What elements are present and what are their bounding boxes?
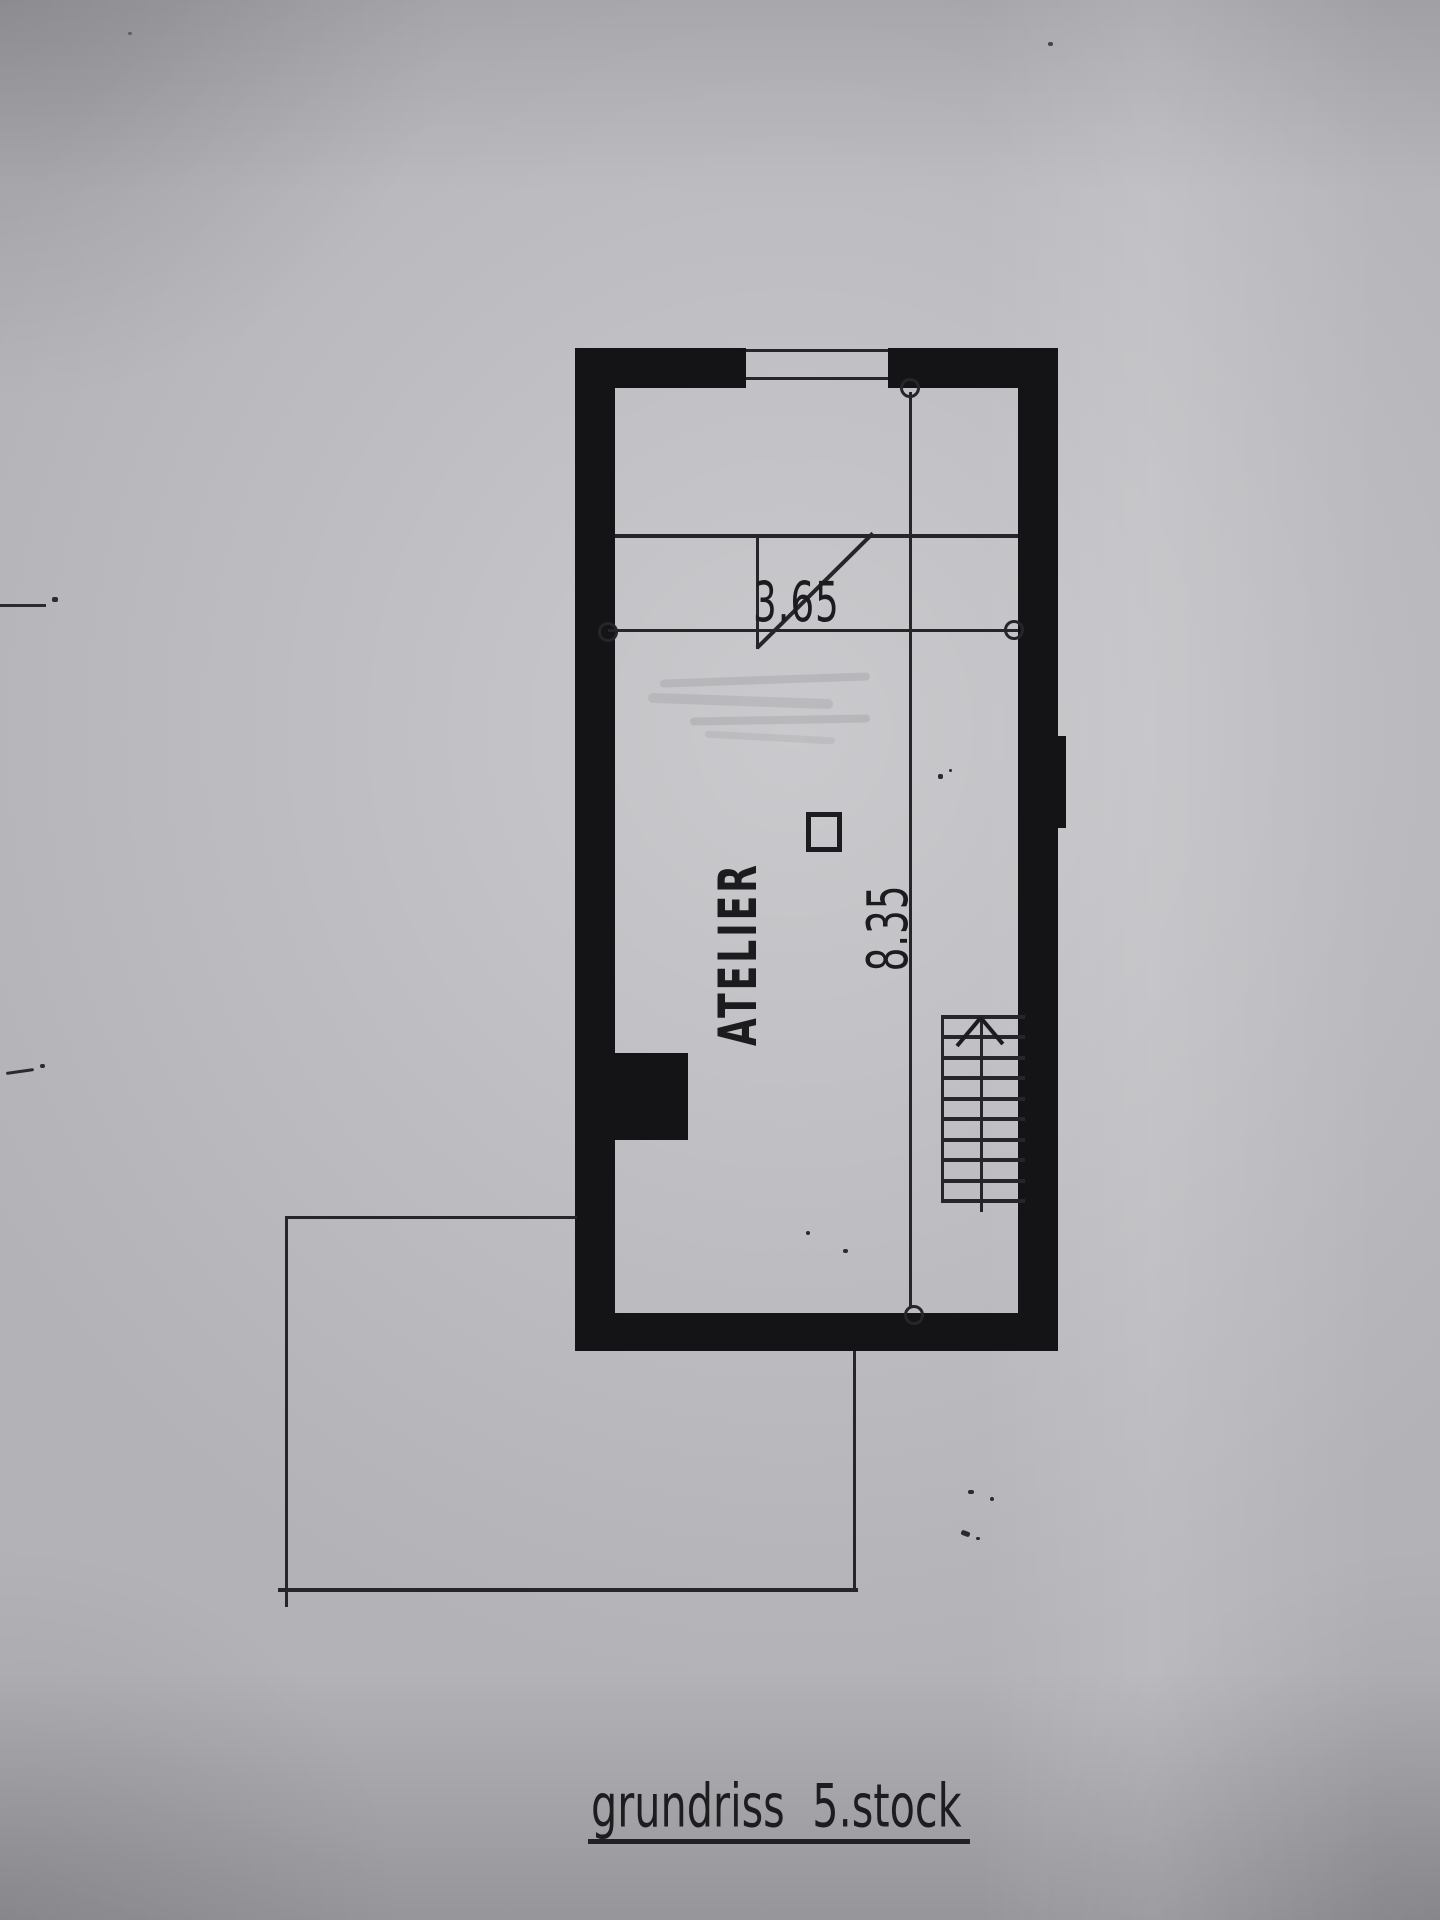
ink-speck bbox=[938, 774, 943, 779]
dimension-endpoint-circle bbox=[900, 378, 920, 398]
plan-title: grundriss 5.stock bbox=[591, 1776, 962, 1836]
ink-speck bbox=[0, 604, 46, 607]
ink-speck bbox=[949, 769, 952, 772]
ink-speck bbox=[806, 1231, 810, 1235]
ink-speck bbox=[843, 1249, 848, 1253]
annex-outline-left bbox=[285, 1216, 288, 1607]
ink-speck bbox=[976, 1537, 980, 1540]
window-opening-line-outer bbox=[746, 349, 888, 352]
stairs-center-line bbox=[980, 1020, 983, 1212]
dimension-endpoint-circle bbox=[598, 622, 618, 642]
dimension-endpoint-circle bbox=[904, 1305, 924, 1325]
pencil-smudge bbox=[648, 693, 833, 709]
stair-tread bbox=[941, 1097, 1025, 1101]
ink-speck bbox=[968, 1490, 974, 1494]
ink-speck bbox=[1048, 42, 1053, 46]
stair-tread bbox=[941, 1035, 1025, 1039]
title-underline bbox=[588, 1839, 970, 1844]
ink-speck bbox=[40, 1064, 45, 1068]
wall-bottom bbox=[575, 1313, 1058, 1351]
stair-tread bbox=[941, 1076, 1025, 1080]
dim-width-label: 3.65 bbox=[753, 576, 840, 631]
ink-speck bbox=[990, 1497, 994, 1501]
partition-line bbox=[615, 534, 1018, 538]
ink-speck bbox=[128, 32, 132, 35]
pencil-smudge bbox=[705, 731, 835, 745]
ink-speck bbox=[52, 597, 58, 602]
stair-tread bbox=[941, 1158, 1025, 1162]
stair-tread bbox=[941, 1117, 1025, 1121]
ink-speck bbox=[6, 1068, 34, 1075]
square-symbol bbox=[806, 812, 842, 852]
photographed-paper-sheet: 3.65 8.35 ATELIER grundriss 5.stock bbox=[0, 0, 1440, 1920]
stair-tread bbox=[941, 1179, 1025, 1183]
dim-height-label: 8.35 bbox=[861, 881, 917, 975]
dimension-endpoint-circle bbox=[1004, 620, 1024, 640]
wall-right-pier bbox=[1048, 736, 1066, 828]
annex-outline-bottom bbox=[278, 1588, 858, 1592]
pencil-smudge bbox=[690, 714, 870, 725]
stair-tread bbox=[941, 1199, 1025, 1203]
annex-outline-top bbox=[285, 1216, 577, 1219]
pencil-smudge bbox=[660, 672, 870, 687]
wall-left bbox=[575, 348, 615, 1351]
stair-tread bbox=[941, 1138, 1025, 1142]
stair-tread bbox=[941, 1056, 1025, 1060]
dimension-line-vertical bbox=[909, 392, 912, 1307]
stairs-treads bbox=[941, 1015, 1025, 1203]
room-label: ATELIER bbox=[714, 859, 766, 1049]
ink-speck bbox=[960, 1530, 970, 1538]
wall-left-pier bbox=[575, 1053, 688, 1140]
window-opening-line-inner bbox=[746, 377, 888, 380]
annex-outline-right bbox=[853, 1351, 856, 1591]
